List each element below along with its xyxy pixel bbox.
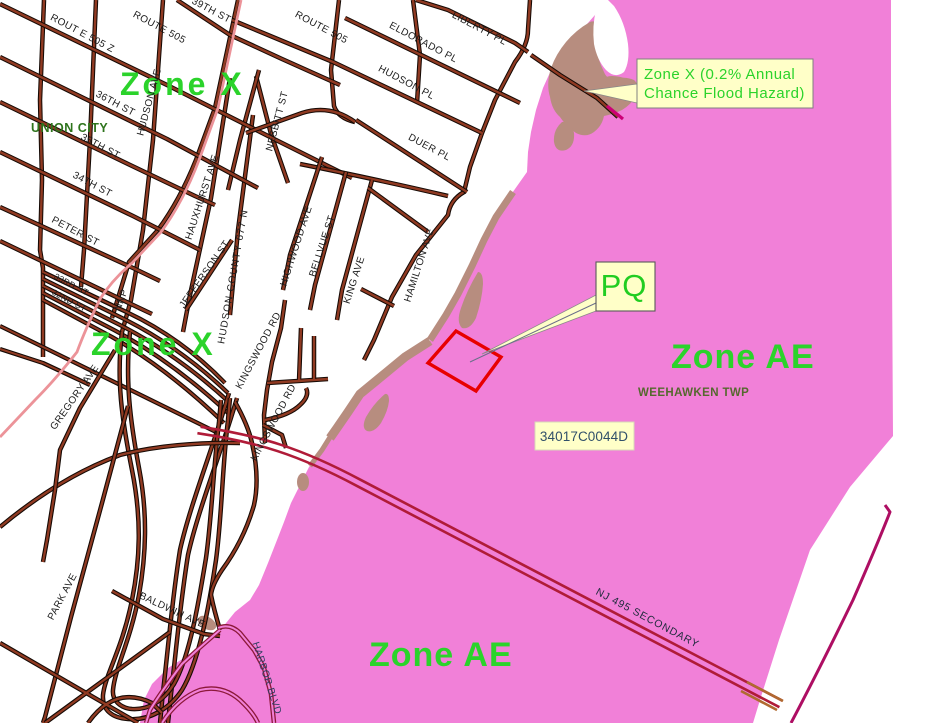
svg-text:WEEHAWKEN TWP: WEEHAWKEN TWP xyxy=(638,387,749,399)
svg-text:Zone AE: Zone AE xyxy=(671,338,815,376)
svg-text:Zone X (0.2% Annual: Zone X (0.2% Annual xyxy=(644,66,795,83)
svg-text:Zone AE: Zone AE xyxy=(369,636,513,674)
svg-text:UNION CITY: UNION CITY xyxy=(31,121,108,135)
svg-text:34017C0044D: 34017C0044D xyxy=(540,429,628,444)
svg-text:Chance Flood Hazard): Chance Flood Hazard) xyxy=(644,85,805,102)
svg-text:Zone X: Zone X xyxy=(91,326,216,362)
svg-text:Zone X: Zone X xyxy=(120,66,245,102)
svg-text:PQ: PQ xyxy=(601,268,648,303)
